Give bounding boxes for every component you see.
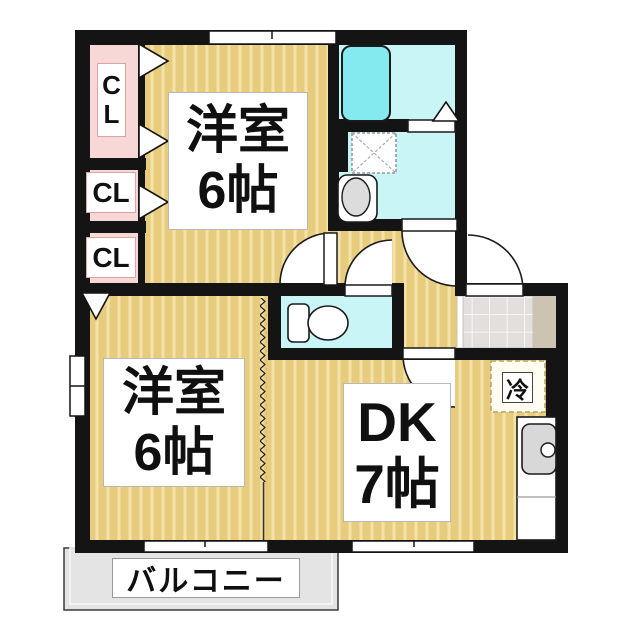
bedroom-left-label: 洋室 6帖: [103, 358, 245, 487]
dining-kitchen-label: DK 7帖: [343, 383, 451, 522]
dk-name: DK: [357, 391, 436, 453]
closet-tall-letter-c: C: [102, 71, 121, 100]
entrance-area: [457, 296, 556, 350]
closet-tall-label: C L: [97, 63, 126, 137]
dk-size: 7帖: [354, 453, 440, 515]
bedroom-left-name: 洋室: [122, 363, 226, 423]
closet-low-text: CL: [92, 243, 129, 273]
floor-plan-drawing: [0, 0, 640, 640]
closet-low-label: CL: [86, 237, 136, 278]
closet-tall-letter-l: L: [104, 100, 120, 129]
balcony-label: バルコニー: [112, 558, 300, 598]
toilet-wc-icon: [288, 304, 348, 342]
bedroom-top-label: 洋室 6帖: [168, 92, 308, 230]
floor-plan: 洋室 6帖 洋室 6帖 DK 7帖 C L CL CL 冷 バルコニー: [0, 0, 640, 640]
balcony-text: バルコニー: [126, 556, 285, 600]
kitchen-counter: [517, 417, 556, 540]
bedroom-top-name: 洋室: [186, 101, 290, 161]
bedroom-top-size: 6帖: [198, 161, 279, 221]
closet-mid-text: CL: [92, 178, 129, 208]
bedroom-left-size: 6帖: [134, 423, 215, 483]
closet-mid-label: CL: [86, 172, 136, 213]
toilet-washroom-icon: [338, 175, 377, 222]
refrigerator-label: 冷: [502, 372, 533, 403]
washing-machine-icon: [352, 133, 396, 173]
bathtub-icon: [342, 46, 390, 121]
faucet-icon: [541, 443, 555, 457]
refrigerator-text: 冷: [506, 371, 529, 405]
